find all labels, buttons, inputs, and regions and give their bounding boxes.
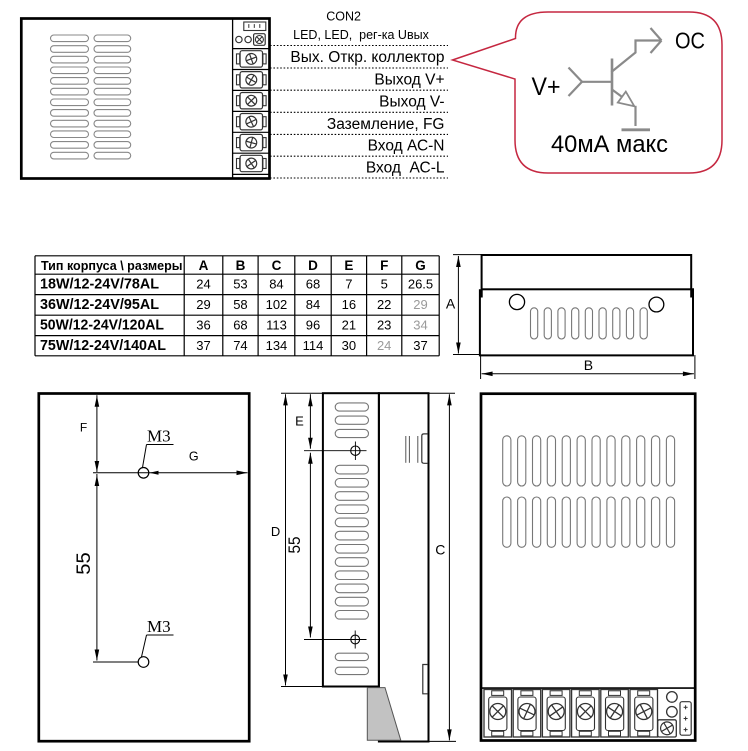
- svg-text:37: 37: [196, 338, 210, 353]
- svg-text:96: 96: [306, 318, 320, 333]
- svg-text:68: 68: [233, 318, 247, 333]
- svg-text:114: 114: [303, 338, 324, 353]
- svg-text:24: 24: [377, 338, 391, 353]
- svg-text:21: 21: [342, 318, 356, 333]
- svg-text:34: 34: [413, 318, 427, 333]
- svg-text:26.5: 26.5: [408, 277, 433, 292]
- svg-text:55: 55: [285, 537, 304, 554]
- svg-text:OC: OC: [675, 28, 705, 54]
- svg-text:Вход АС-N: Вход АС-N: [368, 138, 445, 155]
- svg-text:102: 102: [266, 297, 288, 312]
- svg-text:74: 74: [233, 338, 247, 353]
- svg-text:G: G: [189, 450, 199, 464]
- svg-text:5: 5: [381, 277, 388, 292]
- svg-text:37: 37: [413, 338, 427, 353]
- svg-text:A: A: [199, 258, 209, 273]
- svg-text:30: 30: [342, 338, 356, 353]
- svg-text:55: 55: [73, 552, 95, 575]
- svg-text:50W/12-24V/120AL: 50W/12-24V/120AL: [40, 318, 164, 334]
- svg-text:Выход V+: Выход V+: [374, 72, 444, 89]
- svg-text:E: E: [344, 258, 353, 273]
- svg-text:58: 58: [233, 297, 247, 312]
- svg-text:C: C: [435, 542, 445, 558]
- svg-text:D: D: [308, 258, 318, 273]
- svg-text:G: G: [415, 258, 426, 273]
- svg-text:29: 29: [413, 297, 427, 312]
- svg-text:36W/12-24V/95AL: 36W/12-24V/95AL: [40, 297, 159, 313]
- svg-text:84: 84: [306, 297, 320, 312]
- svg-text:F: F: [80, 421, 87, 435]
- svg-text:29: 29: [196, 297, 210, 312]
- svg-text:B: B: [236, 258, 246, 273]
- svg-text:Вых. Откр. коллектор: Вых. Откр. коллектор: [290, 49, 444, 66]
- svg-text:7: 7: [345, 277, 352, 292]
- svg-text:Заземление, FG: Заземление, FG: [327, 116, 445, 133]
- svg-text:C: C: [272, 258, 282, 273]
- svg-text:40мА макс: 40мА макс: [551, 131, 668, 158]
- svg-text:24: 24: [196, 277, 210, 292]
- svg-text:M3: M3: [147, 427, 171, 446]
- svg-text:16: 16: [342, 297, 356, 312]
- svg-text:CON2: CON2: [326, 10, 361, 24]
- svg-text:V+: V+: [532, 73, 561, 101]
- svg-text:18W/12-24V/78AL: 18W/12-24V/78AL: [40, 277, 159, 293]
- svg-text:84: 84: [269, 277, 283, 292]
- svg-text:D: D: [271, 524, 280, 539]
- svg-text:53: 53: [233, 277, 247, 292]
- svg-text:Выход V-: Выход V-: [379, 94, 444, 111]
- svg-text:68: 68: [306, 277, 320, 292]
- svg-text:134: 134: [266, 338, 288, 353]
- svg-text:23: 23: [377, 318, 391, 333]
- svg-text:Тип корпуса \ размеры: Тип корпуса \ размеры: [41, 258, 183, 273]
- svg-text:22: 22: [377, 297, 391, 312]
- svg-text:E: E: [295, 414, 304, 429]
- svg-text:LED, LED, рег-ка Uвых: LED, LED, рег-ка Uвых: [293, 28, 429, 42]
- svg-text:113: 113: [266, 318, 287, 333]
- svg-text:M3: M3: [147, 617, 171, 636]
- svg-text:36: 36: [196, 318, 210, 333]
- svg-text:A: A: [446, 296, 456, 312]
- svg-text:75W/12-24V/140AL: 75W/12-24V/140AL: [40, 338, 166, 354]
- svg-text:F: F: [380, 258, 388, 273]
- svg-text:B: B: [584, 357, 593, 373]
- svg-text:Вход АС-L: Вход АС-L: [366, 160, 445, 177]
